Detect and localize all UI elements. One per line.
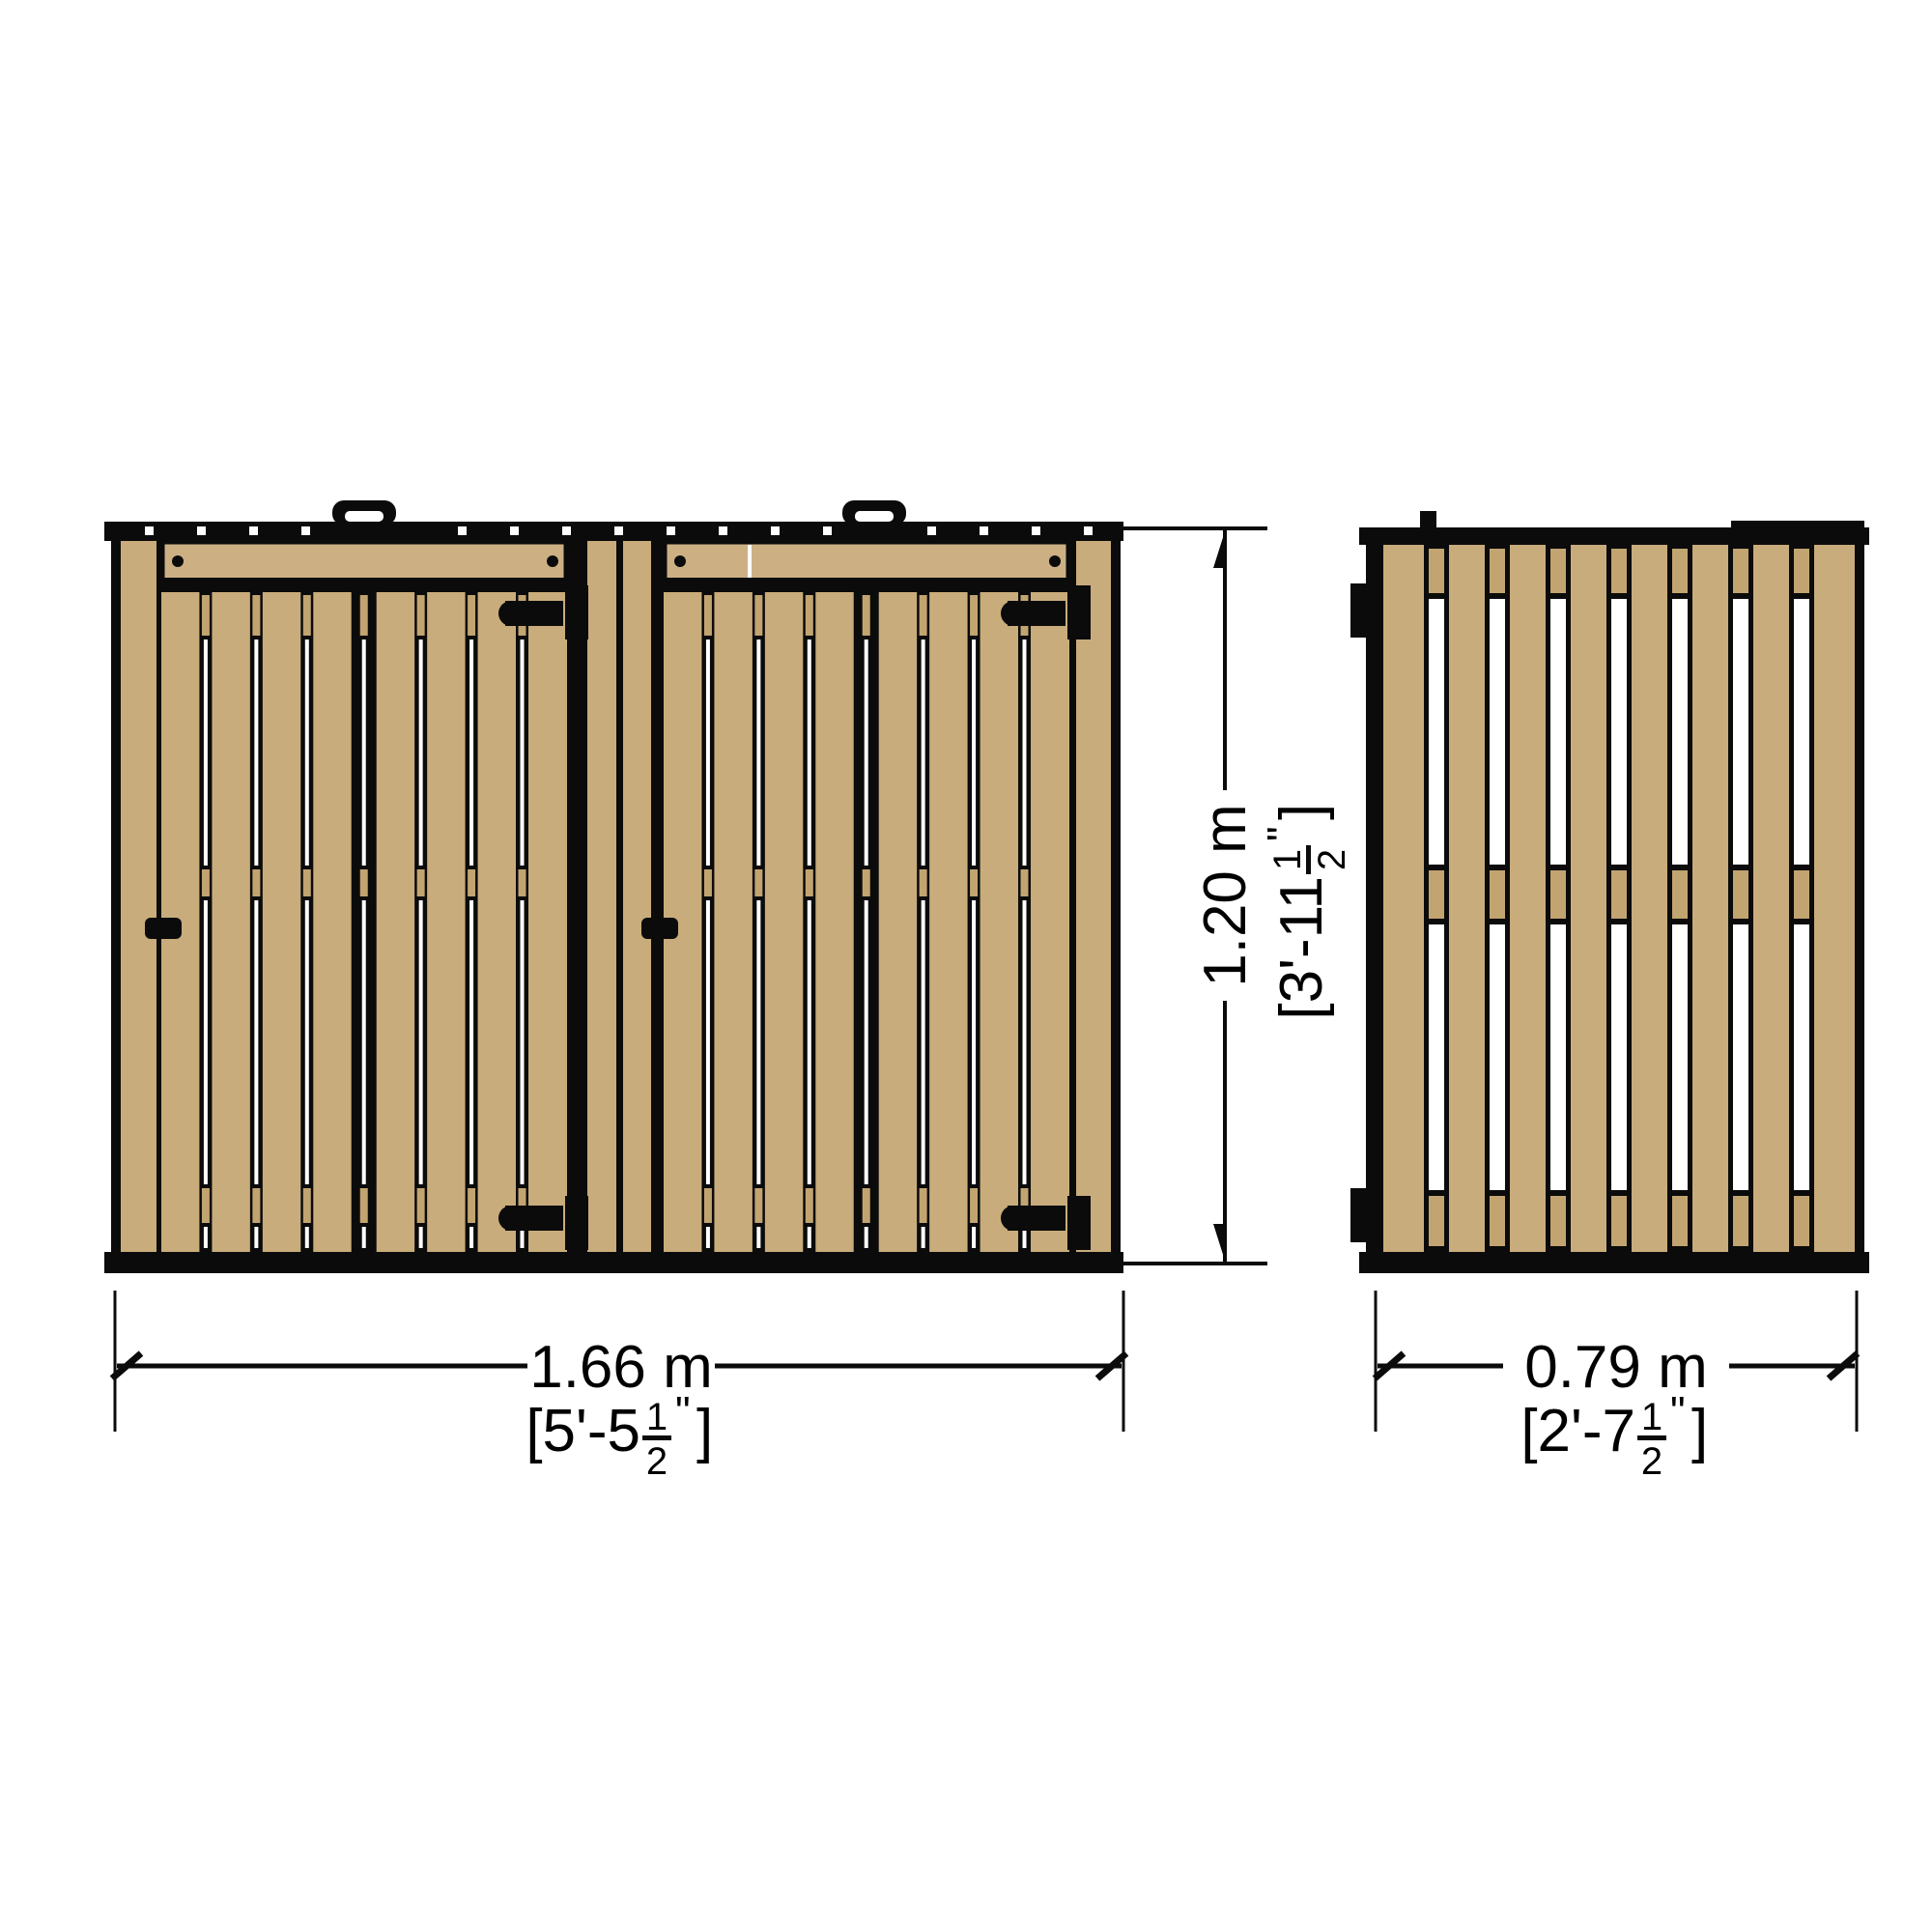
closing-bracket: ]: [696, 1398, 713, 1464]
gap-back-slat: [920, 595, 927, 636]
edge-bracket-bottom: [1350, 1188, 1368, 1242]
inches-mark: ": [1259, 826, 1306, 841]
gap-light-sliver: [808, 1227, 811, 1248]
fraction-numerator: 1: [1641, 1396, 1662, 1438]
gap-opening-lower: [1611, 924, 1627, 1190]
rail-screw: [547, 555, 558, 567]
gap-light-sliver: [808, 900, 811, 1184]
gap-back-slat: [754, 595, 762, 636]
gap-back-slat: [806, 869, 813, 896]
gap-back-slat: [417, 595, 425, 636]
door-latch-1: [145, 918, 182, 939]
base-rail: [104, 1252, 1123, 1273]
gap-rail-block-bottom: [1550, 1196, 1566, 1246]
gap-opening-lower: [1794, 924, 1809, 1190]
lid-board-joint-tick: [145, 526, 154, 535]
frame-edge-right: [1111, 541, 1121, 1252]
imperial-feet-inches: [3'-11: [1268, 876, 1335, 1020]
imperial-feet-inches: [5'-5: [526, 1398, 640, 1464]
gap-light-sliver: [204, 1227, 208, 1248]
stile-line-left: [156, 541, 161, 1252]
lid-board-joint-tick: [823, 526, 832, 535]
gap-rail-block-mid: [1490, 870, 1505, 919]
gap-back-slat: [360, 595, 368, 636]
hinge-pin-top-nub: [1420, 511, 1436, 528]
front-elevation-view: [104, 500, 1123, 1273]
gap-light-sliver: [972, 1227, 976, 1248]
gap-opening-upper: [1429, 599, 1444, 865]
side-back-edge: [1855, 545, 1864, 1252]
gap-back-slat: [1021, 869, 1029, 896]
gap-back-slat: [417, 869, 425, 896]
gap-back-slat: [704, 1188, 712, 1223]
fraction-numerator: 1: [1266, 849, 1309, 870]
fraction-denominator: 2: [1311, 849, 1353, 870]
gap-light-sliver: [469, 900, 473, 1184]
gap-back-slat: [920, 869, 927, 896]
gap-back-slat: [303, 869, 311, 896]
gap-rail-block-top: [1550, 549, 1566, 593]
hinge-pin: [1001, 1206, 1026, 1231]
drawing-canvas: 1.66 m 0.79 m 1.20 m [5'-512"] [2'-712"]…: [0, 0, 1932, 1932]
lid-handle-opening: [345, 511, 384, 522]
gap-light-sliver: [706, 900, 710, 1184]
gap-opening-lower: [1490, 924, 1505, 1190]
hinge-pin: [1001, 601, 1026, 626]
center-post-line: [616, 541, 623, 1252]
gap-light-sliver: [362, 1227, 366, 1248]
gap-back-slat: [360, 1188, 368, 1223]
gap-back-slat: [704, 595, 712, 636]
bin-store-technical-drawing: 1.66 m 0.79 m 1.20 m [5'-512"] [2'-712"]…: [0, 0, 1932, 1932]
lid-board-joint-tick: [719, 526, 727, 535]
gap-opening-upper: [1611, 599, 1627, 865]
gap-rail-block-top: [1429, 549, 1444, 593]
gap-light-sliver: [419, 1227, 423, 1248]
lid-board-joint-tick: [614, 526, 623, 535]
gap-rail-block-mid: [1672, 870, 1688, 919]
gap-rail-block-mid: [1794, 870, 1809, 919]
hinge-plate: [565, 1196, 588, 1250]
gap-rail-block-mid: [1429, 870, 1444, 919]
hinge-pin: [498, 601, 524, 626]
side-elevation-view: [1350, 511, 1869, 1273]
gap-light-sliver: [521, 900, 525, 1184]
closing-bracket: ]: [1268, 804, 1335, 820]
gap-light-sliver: [922, 900, 925, 1184]
closing-bracket: ]: [1691, 1398, 1708, 1464]
lid-board-joint-tick: [1084, 526, 1093, 535]
lid-board-joint-tick: [927, 526, 936, 535]
cap-end-nub: [1858, 532, 1869, 543]
fraction-denominator: 2: [646, 1440, 668, 1483]
gap-rail-block-bottom: [1611, 1196, 1627, 1246]
height-metric-label-group: 1.20 m: [1192, 804, 1259, 987]
gap-rail-block-bottom: [1733, 1196, 1748, 1246]
gap-back-slat: [468, 1188, 475, 1223]
lid-board-joint-tick: [458, 526, 467, 535]
gap-back-slat: [863, 1188, 870, 1223]
hinge-plate: [1067, 1196, 1091, 1250]
gap-opening-upper: [1672, 599, 1688, 865]
fraction-numerator: 1: [646, 1396, 668, 1438]
gap-light-sliver: [706, 639, 710, 866]
gap-light-sliver: [922, 639, 925, 866]
gap-light-sliver: [204, 900, 208, 1184]
gap-light-sliver: [972, 900, 976, 1184]
side-front-edge: [1366, 545, 1383, 1252]
gap-light-sliver: [419, 639, 423, 866]
gap-back-slat: [202, 1188, 210, 1223]
door-gap-right: [651, 541, 664, 1252]
gap-light-sliver: [706, 1227, 710, 1248]
gap-opening-lower: [1429, 924, 1444, 1190]
gap-back-slat: [863, 869, 870, 896]
gap-rail-block-mid: [1550, 870, 1566, 919]
gap-light-sliver: [756, 900, 760, 1184]
gap-back-slat: [970, 1188, 978, 1223]
gap-opening-lower: [1672, 924, 1688, 1190]
lid-board-joint-tick: [510, 526, 519, 535]
rail-screw: [1049, 555, 1061, 567]
gap-rail-block-bottom: [1794, 1196, 1809, 1246]
gap-rail-block-top: [1672, 549, 1688, 593]
gap-back-slat: [417, 1188, 425, 1223]
lid-board-joint-tick: [1032, 526, 1040, 535]
gap-light-sliver: [362, 900, 366, 1184]
gap-light-sliver: [254, 639, 258, 866]
inches-mark: ": [1670, 1388, 1686, 1435]
gap-light-sliver: [865, 1227, 868, 1248]
frame-edge-left: [111, 541, 121, 1252]
gap-light-sliver: [521, 639, 525, 866]
gap-back-slat: [806, 595, 813, 636]
gap-rail-block-bottom: [1490, 1196, 1505, 1246]
rail-shadow-band: [158, 578, 570, 593]
rail-screw: [674, 555, 686, 567]
gap-back-slat: [202, 869, 210, 896]
gap-light-sliver: [419, 900, 423, 1184]
gap-rail-block-bottom: [1672, 1196, 1688, 1246]
side-base-rail: [1359, 1252, 1869, 1273]
door-top-rail: [161, 541, 567, 582]
gap-opening-lower: [1733, 924, 1748, 1190]
gap-rail-block-top: [1733, 549, 1748, 593]
gap-light-sliver: [865, 639, 868, 866]
gap-back-slat: [360, 869, 368, 896]
gap-opening-upper: [1490, 599, 1505, 865]
edge-bracket-top: [1350, 583, 1368, 638]
door-gap-left: [567, 541, 587, 1252]
gap-light-sliver: [362, 639, 366, 866]
gap-back-slat: [920, 1188, 927, 1223]
rail-board-joint: [748, 545, 752, 579]
stile-line-right: [1069, 541, 1076, 1252]
gap-light-sliver: [305, 1227, 309, 1248]
gap-light-sliver: [865, 900, 868, 1184]
gap-back-slat: [970, 869, 978, 896]
gap-back-slat: [704, 869, 712, 896]
gap-opening-lower: [1550, 924, 1566, 1190]
height-metric-label: 1.20 m: [1192, 804, 1259, 987]
lid-board-joint-tick: [562, 526, 571, 535]
gap-back-slat: [252, 1188, 260, 1223]
gap-back-slat: [754, 1188, 762, 1223]
gap-light-sliver: [808, 639, 811, 866]
side-cap: [1359, 527, 1869, 545]
gap-back-slat: [806, 1188, 813, 1223]
gap-back-slat: [970, 595, 978, 636]
rail-shadow-band: [661, 578, 1072, 593]
gap-rail-block-mid: [1611, 870, 1627, 919]
lid-board-joint-tick: [249, 526, 258, 535]
door-top-rail: [664, 541, 1069, 582]
imperial-feet-inches: [2'-7: [1520, 1398, 1635, 1464]
gap-rail-block-top: [1794, 549, 1809, 593]
gap-back-slat: [252, 869, 260, 896]
gap-rail-block-bottom: [1429, 1196, 1444, 1246]
gap-back-slat: [519, 869, 526, 896]
lid-board-joint-tick: [980, 526, 988, 535]
lid-board-joint-tick: [197, 526, 206, 535]
lid-board-joint-tick: [771, 526, 780, 535]
gap-light-sliver: [305, 900, 309, 1184]
gap-light-sliver: [922, 1227, 925, 1248]
gap-light-sliver: [756, 639, 760, 866]
gap-back-slat: [754, 869, 762, 896]
lid-board-joint-tick: [667, 526, 675, 535]
gap-opening-upper: [1794, 599, 1809, 865]
gap-light-sliver: [469, 639, 473, 866]
hinge-plate: [1067, 585, 1091, 639]
gap-light-sliver: [305, 639, 309, 866]
gap-light-sliver: [1023, 639, 1027, 866]
rail-screw: [172, 555, 184, 567]
gap-light-sliver: [254, 1227, 258, 1248]
hinge-plate: [565, 585, 588, 639]
gap-light-sliver: [1023, 900, 1027, 1184]
gap-back-slat: [303, 595, 311, 636]
gap-opening-upper: [1733, 599, 1748, 865]
gap-rail-block-top: [1611, 549, 1627, 593]
gap-back-slat: [252, 595, 260, 636]
hinge-pin: [498, 1206, 524, 1231]
gap-light-sliver: [972, 639, 976, 866]
gap-light-sliver: [756, 1227, 760, 1248]
gap-back-slat: [468, 595, 475, 636]
gap-light-sliver: [254, 900, 258, 1184]
fraction-denominator: 2: [1641, 1440, 1662, 1483]
gap-rail-block-mid: [1733, 870, 1748, 919]
gap-light-sliver: [469, 1227, 473, 1248]
door-latch-2: [641, 918, 678, 939]
lid-handle-opening: [855, 511, 894, 522]
inches-mark: ": [675, 1388, 691, 1435]
gap-back-slat: [863, 595, 870, 636]
lid-board-joint-tick: [301, 526, 310, 535]
gap-back-slat: [303, 1188, 311, 1223]
gap-back-slat: [202, 595, 210, 636]
gap-back-slat: [468, 869, 475, 896]
gap-opening-upper: [1550, 599, 1566, 865]
gap-light-sliver: [204, 639, 208, 866]
gap-rail-block-top: [1490, 549, 1505, 593]
